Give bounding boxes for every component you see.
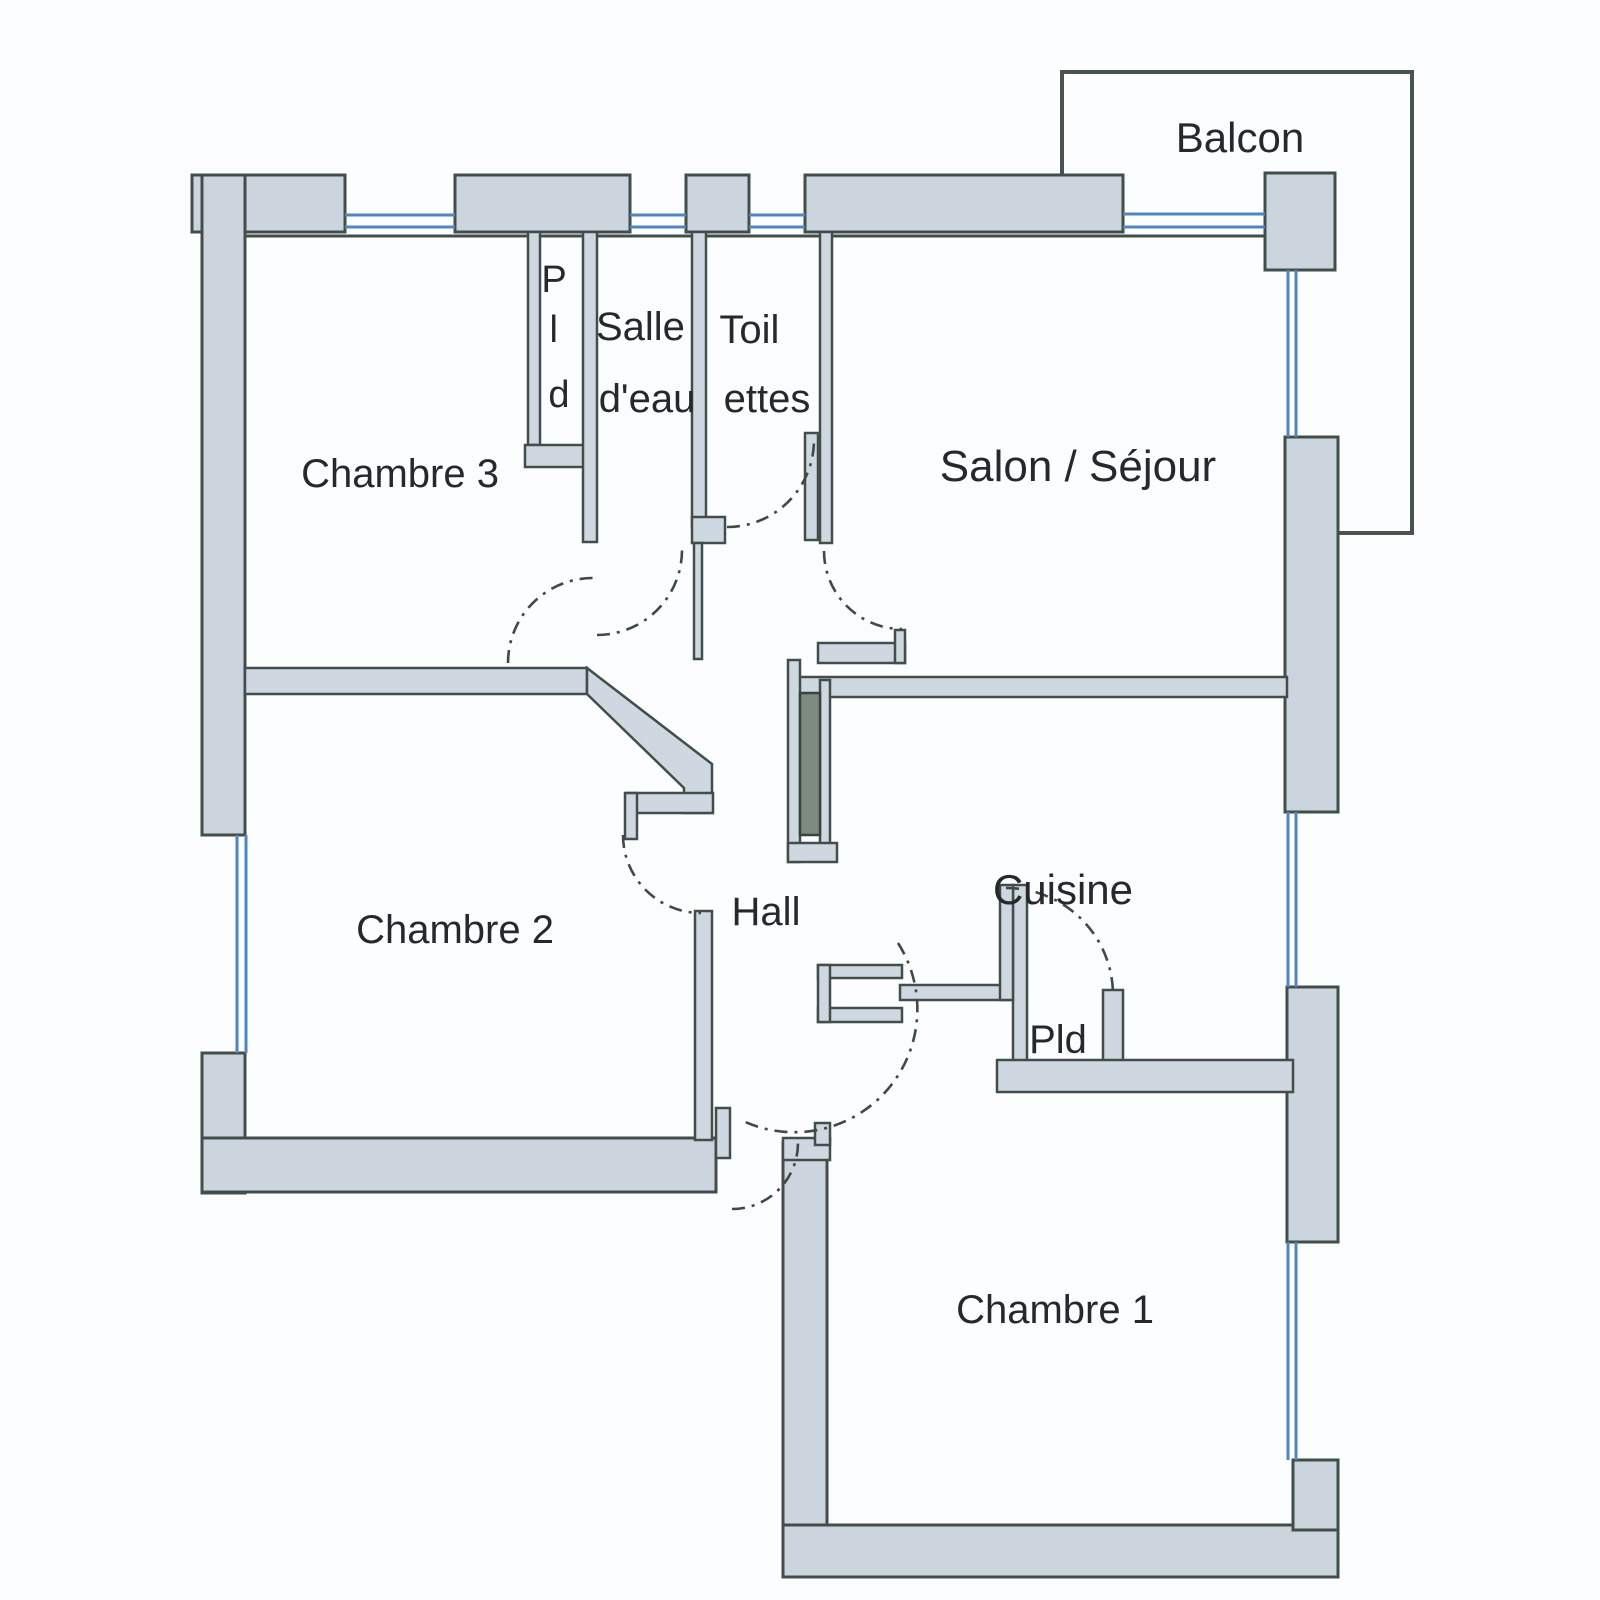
window-salledeau-top [630, 215, 686, 227]
top-wall-segment-4 [805, 175, 1123, 232]
top-wall-segment-3 [686, 175, 749, 232]
label-chambre-3: Chambre 3 [301, 452, 499, 496]
window-chambre2-left [237, 835, 246, 1053]
wall-salon-cuisine [795, 677, 1287, 697]
label-cuisine: Cuisine [993, 866, 1133, 913]
wall-to-pld-cuisine [900, 985, 1015, 1000]
pld-cuisine-right-jamb [1103, 990, 1123, 1063]
window-chambre1-right [1288, 1242, 1296, 1460]
wall-chambre3-chambre2 [245, 668, 587, 694]
label-balcon: Balcon [1176, 114, 1304, 161]
window-salon-right [1288, 270, 1296, 437]
window-cuisine-right [1288, 812, 1296, 987]
window-balcony-door [1123, 214, 1265, 227]
label-salle-deau: Salle d'eau [596, 305, 696, 421]
hall-thin-partition [694, 543, 702, 659]
door-arc-salledeau [597, 550, 682, 635]
window-toilettes-top [749, 215, 805, 227]
toilettes-door-jamb [692, 517, 725, 543]
salon-door-stub [818, 643, 905, 663]
hall-chambre2-jamb [625, 793, 637, 839]
right-wall-pillar-salon [1285, 437, 1338, 812]
chambre1-entry-jamb [815, 1123, 830, 1145]
entry-niche-bottom-cap [788, 843, 837, 862]
label-chambre-2: Chambre 2 [356, 908, 554, 952]
hall-chambre2-stub [627, 793, 713, 813]
chambre2-bottom-wall [202, 1138, 716, 1192]
label-pld-chambre3: P l d [541, 259, 576, 416]
wall-toilettes-salon [820, 232, 832, 543]
door-arc-chambre3 [508, 578, 593, 663]
wall-chambre3-salledeau [583, 232, 597, 542]
right-wall-pillar-bottom [1293, 1460, 1338, 1530]
entry-door-leaf-dark [800, 693, 820, 835]
diagonal-hall-wall [587, 668, 712, 813]
hall-cuisine-bar-connector [818, 965, 830, 1022]
pld-chambre3-left-wall [528, 232, 540, 445]
label-pld-cuisine: Pld [1029, 1018, 1087, 1062]
top-wall-segment-2 [455, 175, 630, 232]
floor-plan-svg: Balcon Chambre 3 P l d Salle d'eau Toil … [0, 0, 1600, 1600]
door-arc-salon [824, 551, 902, 629]
label-toilettes: Toil ettes [719, 308, 810, 421]
salon-door-jamb [895, 630, 905, 663]
top-right-corner-pillar [1265, 173, 1335, 270]
chambre2-right-wall [695, 911, 712, 1140]
label-hall: Hall [732, 890, 801, 934]
interior-walls [245, 232, 1293, 1140]
label-chambre-1: Chambre 1 [956, 1288, 1154, 1332]
left-wall-upper [202, 175, 245, 835]
door-arc-toilettes [727, 440, 814, 527]
door-arc-chambre2 [623, 835, 701, 913]
chambre1-bottom-wall [783, 1525, 1338, 1577]
entry-niche-outer-wall [788, 660, 800, 862]
toilettes-door-leaf [805, 433, 818, 540]
floor-plan-canvas: Balcon Chambre 3 P l d Salle d'eau Toil … [0, 0, 1600, 1600]
chambre2-bottom-jamb [716, 1108, 730, 1158]
right-wall-pillar-cuisine [1287, 987, 1338, 1242]
entry-niche-inner-wall [820, 680, 830, 855]
cuisine-bottom-wall [997, 1060, 1293, 1092]
label-salon-sejour: Salon / Séjour [940, 442, 1216, 491]
chambre1-left-wall [783, 1143, 827, 1560]
window-chambre3-top [345, 215, 455, 227]
